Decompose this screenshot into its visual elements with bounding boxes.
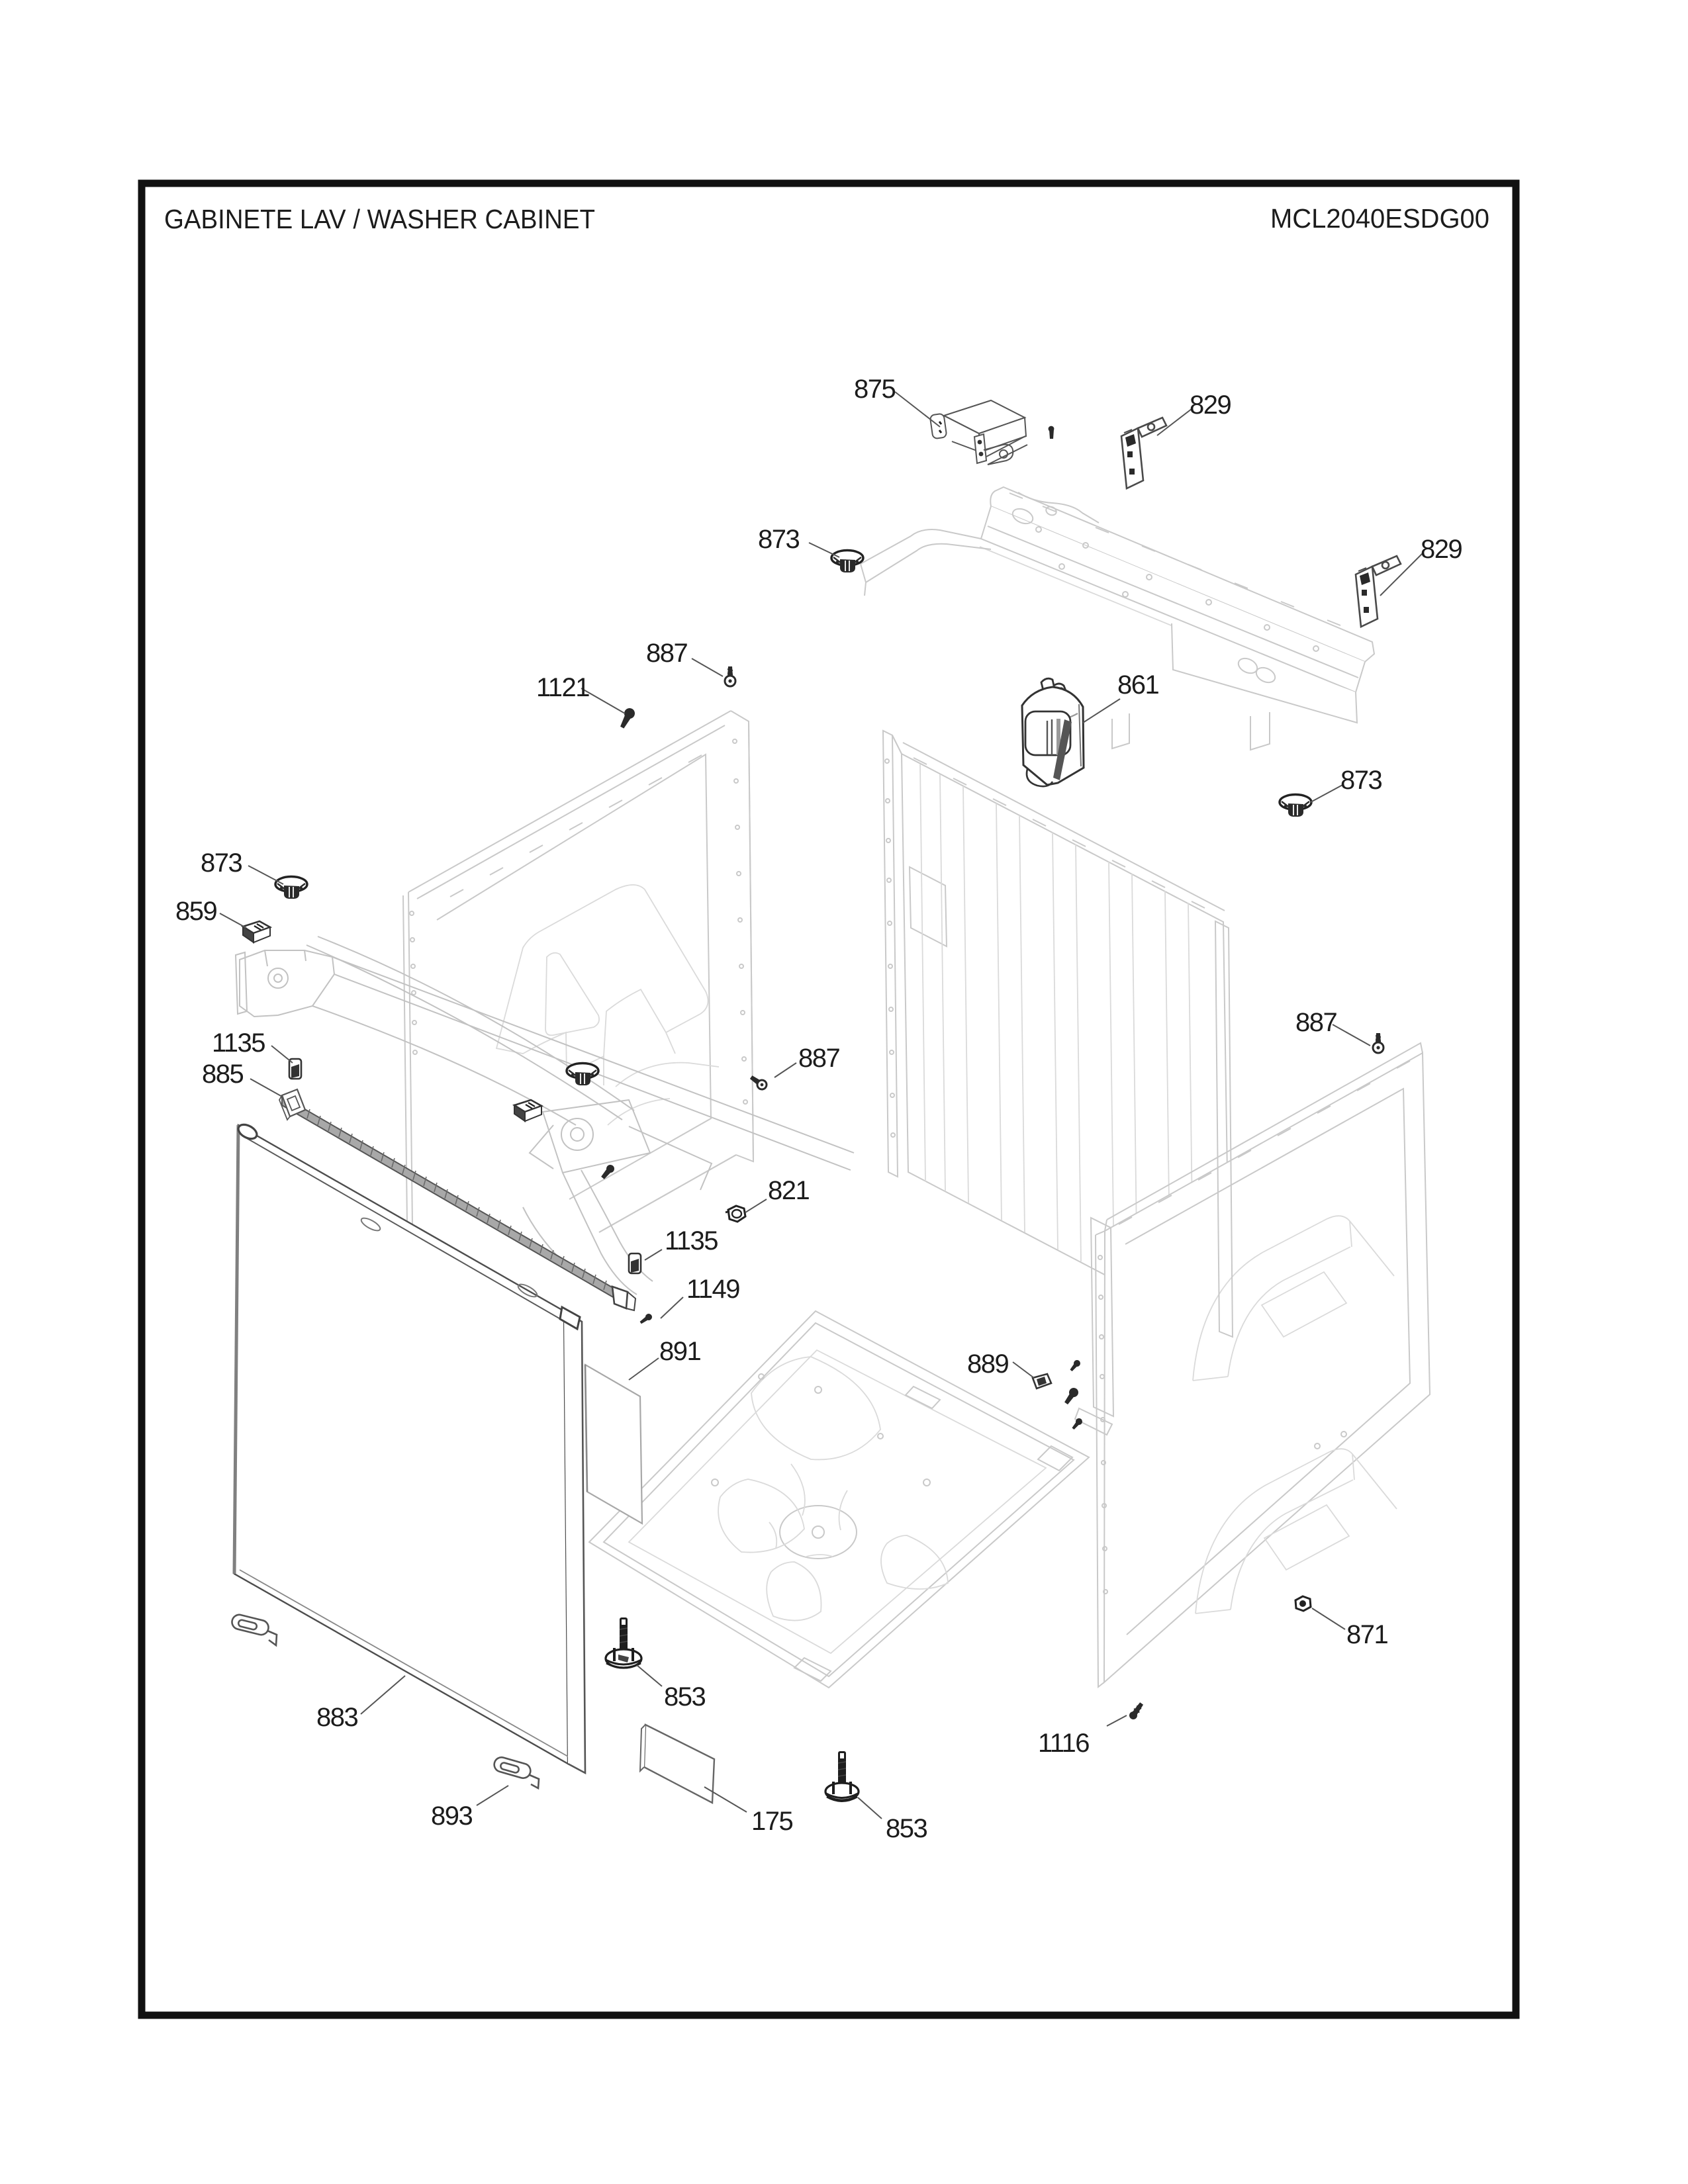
svg-text:1135: 1135 [665,1226,718,1255]
svg-text:883: 883 [316,1703,357,1732]
svg-text:821: 821 [768,1176,809,1205]
svg-text:875: 875 [854,375,895,404]
svg-text:859: 859 [175,897,216,926]
svg-text:873: 873 [1340,766,1382,795]
svg-text:1149: 1149 [686,1275,739,1304]
svg-text:829: 829 [1190,390,1231,420]
svg-text:871: 871 [1346,1620,1387,1649]
svg-text:873: 873 [758,525,799,554]
svg-text:893: 893 [431,1801,472,1831]
svg-text:1121: 1121 [536,673,589,702]
svg-text:853: 853 [664,1682,705,1711]
svg-text:1135: 1135 [212,1028,265,1058]
svg-text:MCL2040ESDG00: MCL2040ESDG00 [1270,203,1489,234]
svg-text:889: 889 [967,1349,1008,1379]
svg-text:887: 887 [646,639,687,668]
svg-text:861: 861 [1117,670,1158,700]
svg-text:873: 873 [201,848,242,878]
svg-text:853: 853 [886,1814,927,1843]
svg-text:175: 175 [751,1807,792,1836]
svg-text:887: 887 [798,1044,839,1073]
svg-text:1116: 1116 [1038,1729,1089,1758]
svg-text:885: 885 [202,1060,243,1089]
svg-text:891: 891 [659,1337,700,1366]
svg-text:GABINETE LAV / WASHER CABINET: GABINETE LAV / WASHER CABINET [164,204,595,234]
svg-text:829: 829 [1421,535,1462,564]
svg-text:887: 887 [1295,1008,1336,1037]
